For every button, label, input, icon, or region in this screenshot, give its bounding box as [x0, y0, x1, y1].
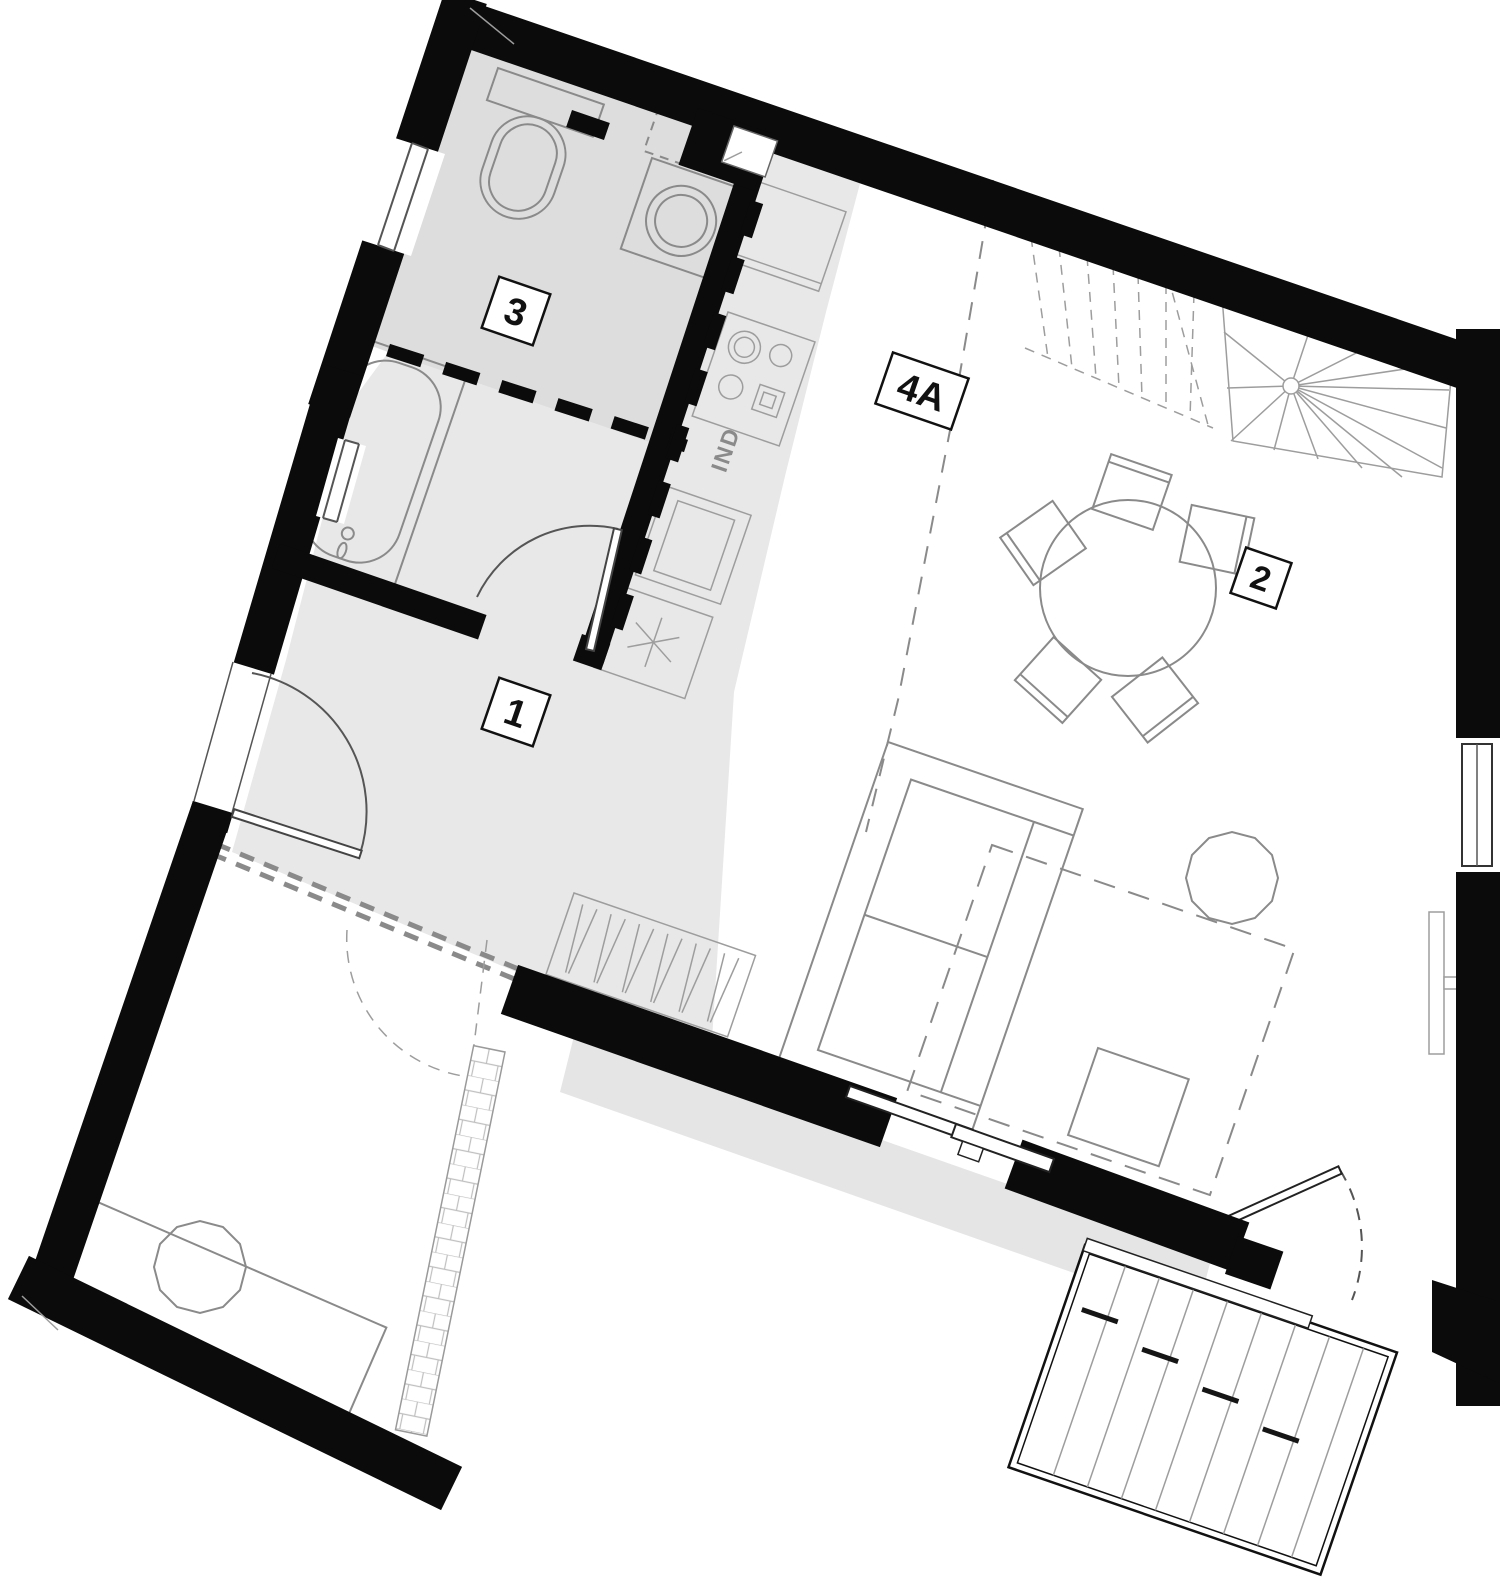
balcony-deck: [1008, 1238, 1399, 1574]
stair-newel-post: [1283, 378, 1299, 394]
label-room-2: 2: [1230, 547, 1291, 608]
dining-table: [1040, 500, 1216, 676]
floor-plan-drawing: IND: [0, 0, 1500, 1589]
window-right-wall: [1454, 738, 1500, 872]
floor-plan-page: IND: [0, 0, 1500, 1589]
label-room-4a: 4A: [875, 352, 968, 429]
wall-annex-bottom: [40, 1288, 430, 1478]
chair: [1015, 637, 1101, 723]
side-table-round: [1186, 832, 1278, 924]
coffee-table: [1068, 1048, 1189, 1166]
chair: [1000, 501, 1086, 585]
round-chair: [154, 1221, 246, 1313]
chair: [1092, 454, 1171, 530]
zone-boundary-dashed: [866, 180, 993, 832]
glass-block-wall: [395, 1046, 505, 1437]
wall-tv: [1429, 912, 1458, 1054]
balcony-door-swing: [1340, 1170, 1362, 1300]
lower-room-door-swing-dashed: [347, 930, 487, 1077]
chair: [1112, 657, 1198, 742]
